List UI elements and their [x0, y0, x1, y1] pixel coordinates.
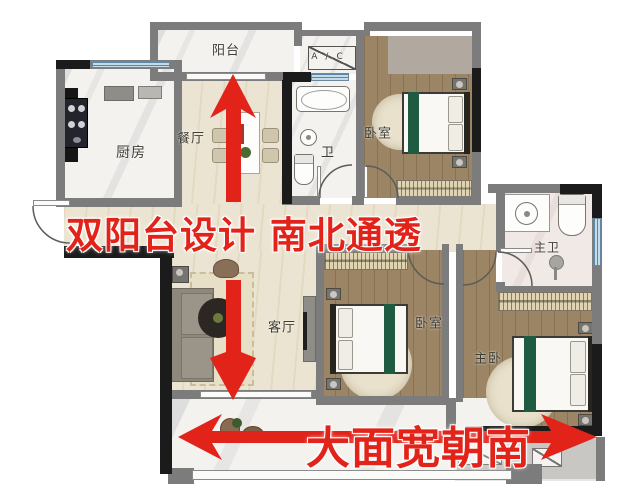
floor-plan: 阳台 A/C 厨房 餐厅 卫 卧室 主卫 卧室 主卧 客厅 阳台 双阳台设计 南…: [0, 0, 635, 493]
down-arrow-icon: [210, 280, 256, 400]
banner-south-width: 大面宽朝南: [306, 412, 531, 476]
banner-north-south: 双阳台设计 南北通透: [66, 205, 422, 259]
up-arrow-icon: [210, 74, 256, 202]
